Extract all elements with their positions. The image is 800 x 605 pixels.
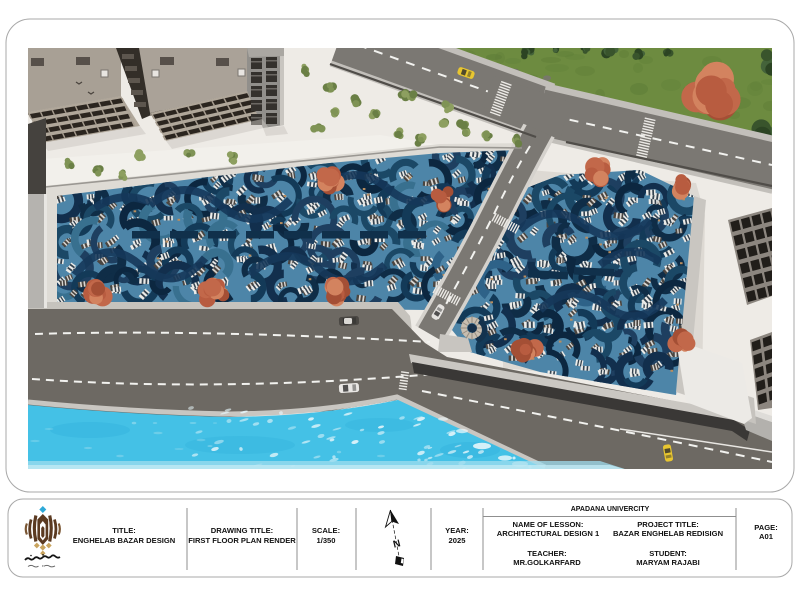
svg-text:SCALE:: SCALE: bbox=[312, 526, 340, 535]
svg-text:A01: A01 bbox=[759, 532, 774, 541]
svg-text:1/350: 1/350 bbox=[316, 536, 335, 545]
svg-text:STUDENT:: STUDENT: bbox=[649, 549, 687, 558]
svg-text:FIRST FLOOR PLAN RENDER: FIRST FLOOR PLAN RENDER bbox=[188, 536, 296, 545]
svg-text:ENGHELAB BAZAR DESIGN: ENGHELAB BAZAR DESIGN bbox=[73, 536, 176, 545]
svg-text:TEACHER:: TEACHER: bbox=[527, 549, 566, 558]
svg-text:MR.GOLKARFARD: MR.GOLKARFARD bbox=[513, 558, 581, 567]
svg-text:MARYAM RAJABI: MARYAM RAJABI bbox=[636, 558, 700, 567]
svg-text:PROJECT TITLE:: PROJECT TITLE: bbox=[637, 520, 699, 529]
svg-text:PAGE:: PAGE: bbox=[754, 523, 778, 532]
svg-text:APADANA UNIVERCITY: APADANA UNIVERCITY bbox=[571, 506, 650, 513]
svg-text:NAME OF LESSON:: NAME OF LESSON: bbox=[513, 520, 584, 529]
svg-text:DRAWING TITLE:: DRAWING TITLE: bbox=[211, 526, 273, 535]
svg-text:TITLE:: TITLE: bbox=[112, 526, 136, 535]
svg-text:ARCHITECTURAL DESIGN 1: ARCHITECTURAL DESIGN 1 bbox=[497, 529, 600, 538]
svg-text:YEAR:: YEAR: bbox=[445, 526, 469, 535]
svg-text:BAZAR ENGHELAB REDISIGN: BAZAR ENGHELAB REDISIGN bbox=[613, 529, 723, 538]
svg-text:2025: 2025 bbox=[449, 536, 467, 545]
